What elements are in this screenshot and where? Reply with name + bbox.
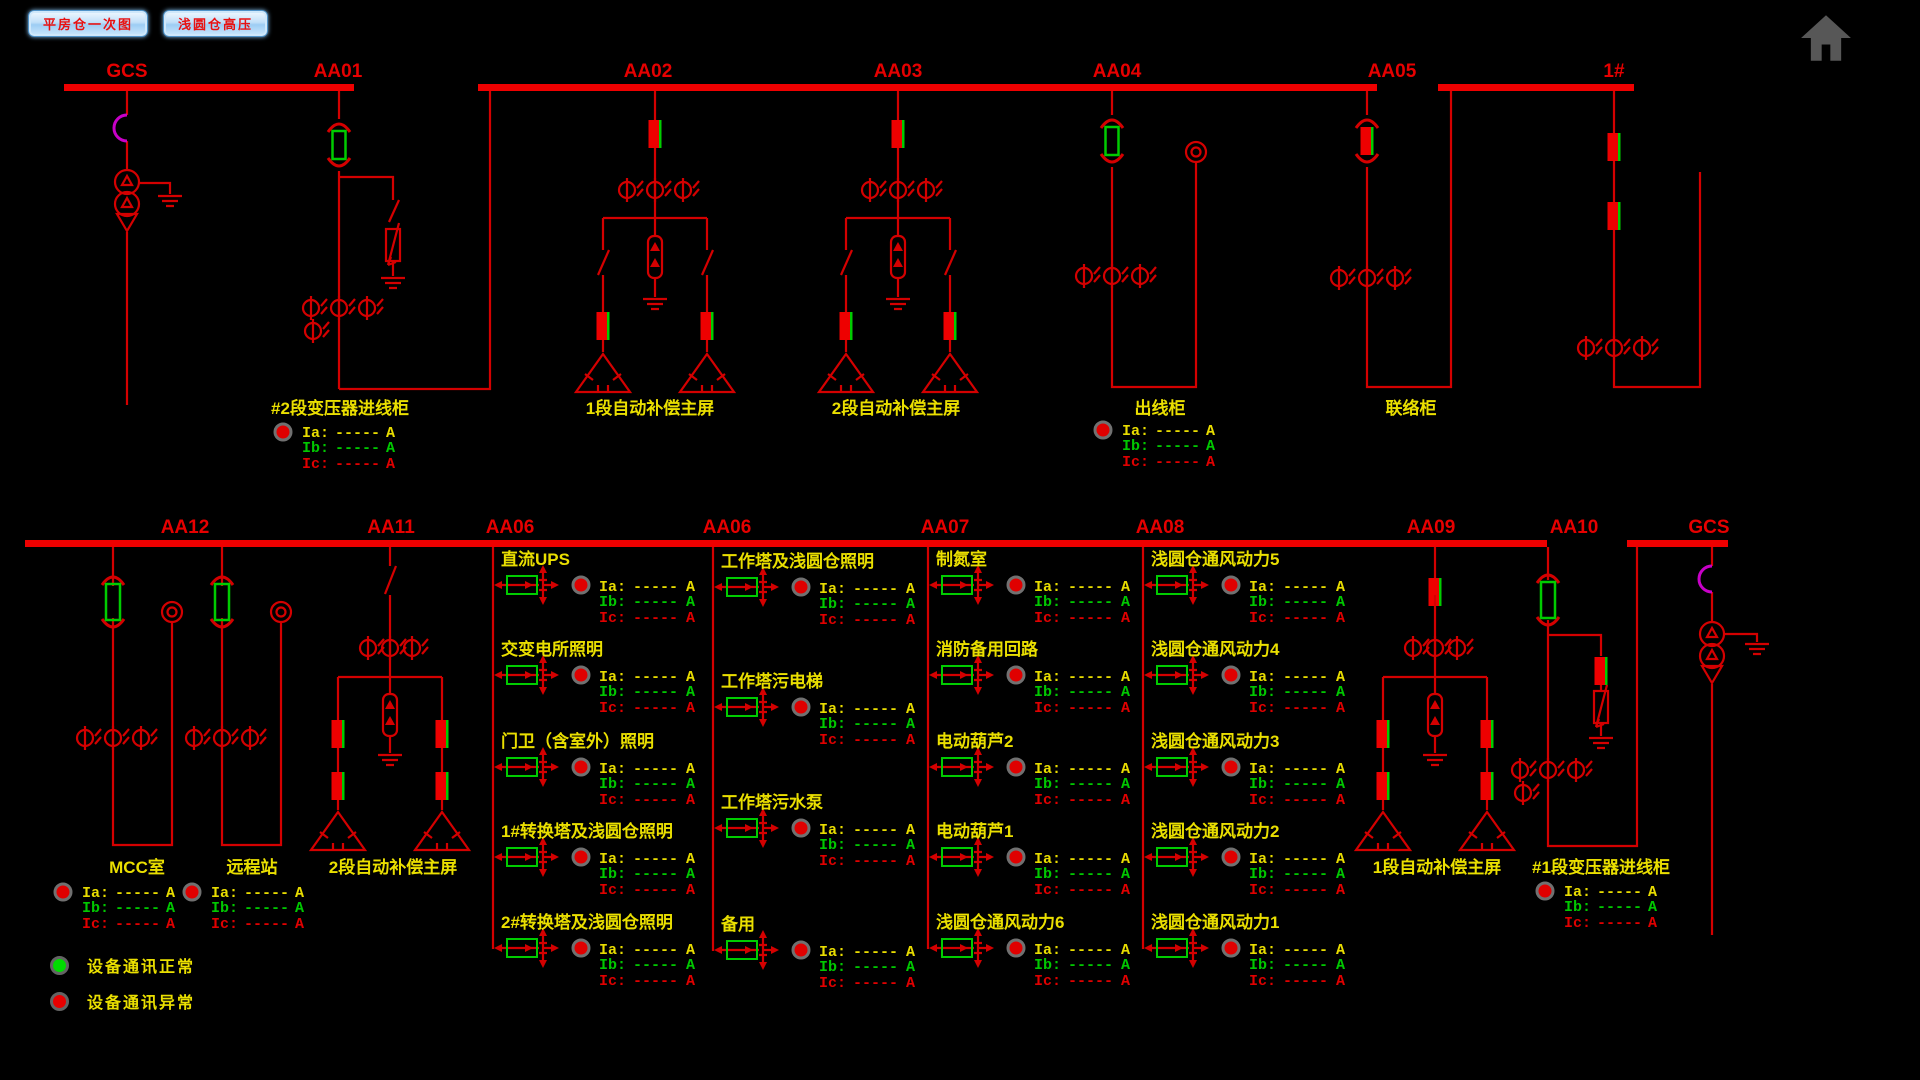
current-readout-unit: A [1121, 684, 1130, 701]
breaker-open-icon [1106, 127, 1119, 155]
drawout-breaker-icon [494, 837, 559, 877]
feeder-label: 浅圆仓通风动力6 [936, 912, 1064, 932]
current-readout-label: Ib: [599, 776, 626, 793]
current-readout-unit: A [686, 957, 695, 974]
current-readout-value: ----- [1283, 882, 1328, 899]
feeder-circuit: 交变电所照明Ia:-----AIb:-----AIc:-----A [494, 639, 695, 717]
bus-label: AA03 [874, 61, 923, 82]
bus-label: AA12 [161, 517, 210, 538]
current-readout-unit: A [906, 612, 915, 629]
feeder-circuit: 直流UPSIa:-----AIb:-----AIc:-----A [494, 549, 695, 627]
feeder-label: 消防备用回路 [936, 639, 1039, 659]
feeder-circuit: 2#转换塔及浅圆仓照明Ia:-----AIb:-----AIc:-----A [494, 912, 695, 990]
current-readout-unit: A [1336, 957, 1345, 974]
cable-head-icon [1186, 142, 1206, 162]
current-readout-label: Ic: [82, 916, 109, 933]
current-readout-unit: A [1336, 866, 1345, 883]
current-readout-value: ----- [1068, 957, 1113, 974]
current-readout-value: ----- [1155, 454, 1200, 471]
current-readout-value: ----- [1283, 594, 1328, 611]
capbank-2-bottom [311, 547, 469, 850]
current-readout-value: ----- [633, 776, 678, 793]
drawout-breaker-icon [929, 655, 994, 695]
current-readout-label: Ic: [599, 973, 626, 990]
current-readout-label: Ib: [1249, 684, 1276, 701]
current-readout-value: ----- [633, 610, 678, 627]
current-readout-value: ----- [1068, 866, 1113, 883]
bus-bars [25, 84, 1728, 547]
voltage-transformer-icon [115, 170, 139, 216]
capbank-2-top [819, 91, 977, 392]
cabinet-label: #2段变压器进线柜 [271, 398, 409, 418]
feeder-1hash [1578, 91, 1700, 387]
feeder-label: 工作塔污水泵 [721, 792, 823, 812]
comm-indicator [1008, 759, 1024, 775]
feeder-label: 电动葫芦1 [936, 821, 1013, 841]
bus-label: GCS [106, 61, 147, 82]
comm-indicator [184, 884, 200, 900]
current-readout-value: ----- [633, 973, 678, 990]
feeder-circuit: 工作塔污水泵Ia:-----AIb:-----AIc:-----A [714, 792, 915, 870]
current-readout-value: ----- [1283, 700, 1328, 717]
current-readout-unit: A [1206, 438, 1215, 455]
current-readout-label: Ib: [1249, 594, 1276, 611]
legend-item-abnormal: 设备通讯异常 [50, 989, 195, 1013]
comm-indicator [573, 667, 589, 683]
drawout-breaker-icon [714, 808, 779, 848]
generated-labels-and-feeders: GCSAA01AA02AA03AA04AA051#AA12AA11AA06AA0… [55, 61, 1730, 992]
cabinet-label: #1段变压器进线柜 [1532, 857, 1670, 877]
bus-label: AA06 [703, 517, 752, 538]
current-readout-unit: A [166, 900, 175, 917]
current-readout-value: ----- [853, 959, 898, 976]
drawout-breaker-icon [929, 747, 994, 787]
current-readout-label: Ib: [599, 594, 626, 611]
current-readout-unit: A [1121, 973, 1130, 990]
feeder-remote-station [186, 547, 291, 845]
current-readout-label: Ic: [1249, 882, 1276, 899]
current-readout-value: ----- [633, 866, 678, 883]
bus-1 [1438, 84, 1634, 91]
cabinet-label: 远程站 [227, 857, 278, 877]
feeder-circuit: 1#转换塔及浅圆仓照明Ia:-----AIb:-----AIc:-----A [494, 821, 695, 899]
feeder-aa01-transformer2-incomer [303, 91, 490, 389]
comm-indicator [1223, 849, 1239, 865]
green-dot-icon [50, 956, 69, 975]
feeder-circuit: 浅圆仓通风动力4Ia:-----AIb:-----AIc:-----A [1144, 639, 1345, 717]
current-readout-label: Ic: [1249, 792, 1276, 809]
current-readout-label: Ic: [1034, 792, 1061, 809]
current-readout-unit: A [686, 973, 695, 990]
feeder-aa04-outgoing [1076, 91, 1206, 387]
current-readout-value: ----- [1068, 882, 1113, 899]
current-readout-value: ----- [244, 900, 289, 917]
current-readout-unit: A [906, 959, 915, 976]
current-readout-unit: A [686, 610, 695, 627]
current-readout-label: Ic: [599, 882, 626, 899]
feeder-circuit: 工作塔及浅圆仓照明Ia:-----AIb:-----AIc:-----A [714, 551, 915, 629]
feeder-circuit: 电动葫芦1Ia:-----AIb:-----AIc:-----A [929, 821, 1130, 899]
drawout-breaker-icon [1144, 837, 1209, 877]
cabinet-readout: Ia:-----AIb:-----AIc:-----A [184, 884, 304, 933]
current-readout-value: ----- [853, 837, 898, 854]
current-readout-value: ----- [853, 612, 898, 629]
ground-icon [1589, 738, 1613, 748]
drawout-breaker-icon [1144, 565, 1209, 605]
current-readout-label: Ic: [302, 456, 329, 473]
current-readout-value: ----- [1068, 776, 1113, 793]
feeder-circuit: 浅圆仓通风动力3Ia:-----AIb:-----AIc:-----A [1144, 731, 1345, 809]
comm-indicator [573, 940, 589, 956]
current-readout-unit: A [1336, 610, 1345, 627]
current-readout-value: ----- [335, 440, 380, 457]
current-readout-unit: A [1336, 594, 1345, 611]
comm-indicator [573, 577, 589, 593]
comm-indicator [1008, 849, 1024, 865]
current-readout-label: Ib: [599, 684, 626, 701]
drawout-breaker-icon [714, 567, 779, 607]
current-readout-value: ----- [1283, 776, 1328, 793]
current-readout-value: ----- [633, 684, 678, 701]
current-readout-label: Ib: [82, 900, 109, 917]
current-readout-value: ----- [1155, 438, 1200, 455]
bus-gcs-bottom [1627, 540, 1728, 547]
current-readout-value: ----- [853, 596, 898, 613]
drawout-breaker-icon [1144, 747, 1209, 787]
bus-aa02-aa05 [478, 84, 1377, 91]
current-readout-unit: A [1121, 594, 1130, 611]
bus-label: GCS [1688, 517, 1729, 538]
bus-label: AA11 [367, 517, 415, 538]
current-readout-unit: A [1121, 957, 1130, 974]
comm-indicator [573, 759, 589, 775]
breaker-closed-icon [1361, 127, 1374, 155]
scada-screen: { "buttons": [ {"label": "平房仓一次图"}, {"la… [0, 0, 1920, 1080]
current-readout-label: Ic: [1034, 973, 1061, 990]
bus-label: AA06 [486, 517, 535, 538]
feeder-label: 浅圆仓通风动力1 [1151, 912, 1279, 932]
feeder-label: 浅圆仓通风动力4 [1151, 639, 1280, 659]
drawout-breaker-icon [714, 930, 779, 970]
current-readout-label: Ic: [599, 610, 626, 627]
feeder-label: 2#转换塔及浅圆仓照明 [501, 912, 673, 932]
bus-label: AA08 [1136, 517, 1185, 538]
drawout-breaker-icon [1144, 655, 1209, 695]
current-readout-value: ----- [1283, 610, 1328, 627]
bus-label: AA01 [314, 61, 363, 82]
comm-indicator [1223, 759, 1239, 775]
drawout-breaker-icon [494, 928, 559, 968]
current-readout-unit: A [1648, 899, 1657, 916]
current-readout-value: ----- [1068, 610, 1113, 627]
current-readout-label: Ic: [1034, 882, 1061, 899]
current-readout-unit: A [686, 700, 695, 717]
current-readout-unit: A [1336, 700, 1345, 717]
cabinet-readout: Ia:-----AIb:-----AIc:-----A [1537, 883, 1657, 932]
comm-indicator [793, 942, 809, 958]
current-readout-label: Ib: [302, 440, 329, 457]
comm-indicator [793, 820, 809, 836]
feeder-circuit: 电动葫芦2Ia:-----AIb:-----AIc:-----A [929, 731, 1130, 809]
current-readout-value: ----- [1597, 899, 1642, 916]
current-readout-label: Ib: [211, 900, 238, 917]
comm-indicator [1537, 883, 1553, 899]
cabinet-readout: Ia:-----AIb:-----AIc:-----A [1095, 422, 1215, 471]
breaker-open-icon [1541, 582, 1555, 618]
current-readout-unit: A [1336, 882, 1345, 899]
current-readout-unit: A [1336, 684, 1345, 701]
bus-label: AA10 [1550, 517, 1599, 538]
current-readout-value: ----- [115, 900, 160, 917]
current-readout-label: Ic: [819, 732, 846, 749]
current-readout-label: Ic: [1249, 973, 1276, 990]
comm-indicator [1223, 577, 1239, 593]
comm-indicator [1008, 667, 1024, 683]
current-readout-value: ----- [1283, 684, 1328, 701]
current-readout-unit: A [295, 900, 304, 917]
cabinet-label: 2段自动补偿主屏 [832, 398, 960, 418]
current-readout-value: ----- [244, 916, 289, 933]
current-readout-label: Ib: [819, 716, 846, 733]
current-readout-label: Ic: [1249, 700, 1276, 717]
current-readout-label: Ic: [599, 792, 626, 809]
current-readout-value: ----- [633, 594, 678, 611]
current-readout-value: ----- [1597, 915, 1642, 932]
drawout-breaker-icon [714, 687, 779, 727]
feeder-label: 1#转换塔及浅圆仓照明 [501, 821, 673, 841]
current-readout-unit: A [1121, 776, 1130, 793]
current-readout-label: Ib: [599, 957, 626, 974]
current-readout-label: Ic: [599, 700, 626, 717]
breaker-closed-icon [1608, 202, 1621, 230]
current-readout-unit: A [1336, 792, 1345, 809]
comm-indicator [1095, 422, 1111, 438]
current-readout-unit: A [1121, 700, 1130, 717]
bus-gcs-top [64, 84, 354, 91]
feeder-circuit: 浅圆仓通风动力5Ia:-----AIb:-----AIc:-----A [1144, 549, 1345, 627]
bus-bottom-main [25, 540, 1547, 547]
comm-status-legend: 设备通讯正常 设备通讯异常 [50, 953, 195, 1025]
current-readout-label: Ic: [1034, 610, 1061, 627]
voltage-transformer-icon [1700, 622, 1724, 668]
current-readout-label: Ib: [1034, 776, 1061, 793]
current-readout-label: Ib: [1249, 957, 1276, 974]
red-dot-icon [50, 992, 69, 1011]
feeder-circuit: 消防备用回路Ia:-----AIb:-----AIc:-----A [929, 639, 1130, 717]
capbank-1-top [576, 91, 734, 392]
breaker-open-icon [333, 131, 346, 159]
current-readout-unit: A [906, 716, 915, 733]
surge-arrester-icon [386, 223, 400, 265]
feeder-aa10-transformer1-incomer [1512, 547, 1637, 846]
legend-label: 设备通讯正常 [87, 953, 195, 977]
bus-label: AA07 [921, 517, 970, 538]
capbank-1-bottom [1356, 547, 1514, 850]
legend-item-normal: 设备通讯正常 [50, 953, 195, 977]
current-readout-label: Ib: [1249, 776, 1276, 793]
current-readout-unit: A [906, 732, 915, 749]
feeder-circuit: 浅圆仓通风动力6Ia:-----AIb:-----AIc:-----A [929, 912, 1130, 990]
current-readout-value: ----- [1283, 973, 1328, 990]
feeder-gcs-top [114, 91, 182, 405]
feeder-label: 工作塔污电梯 [721, 671, 823, 691]
current-readout-unit: A [1121, 792, 1130, 809]
bus-label: AA04 [1093, 61, 1142, 82]
feeder-aa05-tie [1331, 91, 1451, 387]
current-readout-value: ----- [853, 732, 898, 749]
surge-arrester-icon [1594, 685, 1608, 727]
current-readout-label: Ib: [1034, 594, 1061, 611]
current-readout-value: ----- [1068, 684, 1113, 701]
current-readout-label: Ic: [1122, 454, 1149, 471]
cabinet-readout: Ia:-----AIb:-----AIc:-----A [275, 424, 395, 473]
current-readout-label: Ic: [1564, 915, 1591, 932]
current-readout-value: ----- [853, 975, 898, 992]
feeder-mcc-room [77, 547, 182, 845]
feeder-circuit: 浅圆仓通风动力2Ia:-----AIb:-----AIc:-----A [1144, 821, 1345, 899]
current-readout-value: ----- [633, 792, 678, 809]
current-readout-unit: A [906, 975, 915, 992]
current-readout-value: ----- [1068, 792, 1113, 809]
feeder-label: 浅圆仓通风动力2 [1151, 821, 1279, 841]
current-readout-value: ----- [853, 853, 898, 870]
current-readout-unit: A [295, 916, 304, 933]
bus-label: AA09 [1407, 517, 1456, 538]
feeder-label: 浅圆仓通风动力3 [1151, 731, 1279, 751]
current-readout-unit: A [686, 882, 695, 899]
current-readout-value: ----- [1283, 792, 1328, 809]
current-readout-value: ----- [335, 456, 380, 473]
comm-indicator [1008, 577, 1024, 593]
comm-indicator [1223, 667, 1239, 683]
current-readout-label: Ib: [1249, 866, 1276, 883]
current-readout-unit: A [1206, 454, 1215, 471]
feeder-label: 门卫（含室外）照明 [501, 731, 654, 751]
cabinet-label: 联络柜 [1386, 398, 1437, 418]
bus-label: AA02 [624, 61, 673, 82]
current-readout-value: ----- [1068, 973, 1113, 990]
current-readout-unit: A [906, 853, 915, 870]
current-readout-label: Ib: [819, 596, 846, 613]
feeder-gcs-bottom [1699, 547, 1769, 935]
current-readout-unit: A [386, 440, 395, 457]
breaker-closed-icon [1595, 657, 1608, 685]
current-readout-label: Ic: [211, 916, 238, 933]
current-readout-unit: A [1121, 882, 1130, 899]
drawout-breaker-icon [929, 928, 994, 968]
current-readout-unit: A [166, 916, 175, 933]
current-readout-unit: A [686, 776, 695, 793]
current-readout-value: ----- [1283, 866, 1328, 883]
current-readout-unit: A [1336, 973, 1345, 990]
current-readout-label: Ic: [819, 612, 846, 629]
comm-indicator [793, 699, 809, 715]
current-readout-label: Ib: [1034, 957, 1061, 974]
current-readout-label: Ib: [1122, 438, 1149, 455]
feeder-circuit: 备用Ia:-----AIb:-----AIc:-----A [714, 914, 915, 992]
current-readout-label: Ib: [599, 866, 626, 883]
drawout-breaker-icon [494, 565, 559, 605]
feeder-label: 制氮室 [936, 549, 987, 569]
cabinet-readout: Ia:-----AIb:-----AIc:-----A [55, 884, 175, 933]
drawout-breaker-icon [494, 747, 559, 787]
breaker-closed-icon [1608, 133, 1621, 161]
current-readout-unit: A [1648, 915, 1657, 932]
comm-indicator [1223, 940, 1239, 956]
current-readout-label: Ib: [1034, 866, 1061, 883]
current-readout-unit: A [686, 866, 695, 883]
current-readout-unit: A [686, 792, 695, 809]
cabinet-label: 1段自动补偿主屏 [586, 398, 714, 418]
current-readout-label: Ic: [819, 853, 846, 870]
bus-label: AA05 [1368, 61, 1417, 82]
comm-indicator [275, 424, 291, 440]
current-readout-value: ----- [1068, 594, 1113, 611]
drawout-breaker-icon [929, 837, 994, 877]
drawout-breaker-icon [1144, 928, 1209, 968]
current-readout-value: ----- [1068, 700, 1113, 717]
current-readout-label: Ic: [1249, 610, 1276, 627]
cabinet-label: 2段自动补偿主屏 [329, 857, 457, 877]
feeder-label: 电动葫芦2 [936, 731, 1013, 751]
current-readout-unit: A [686, 684, 695, 701]
legend-label: 设备通讯异常 [87, 989, 195, 1013]
current-readout-value: ----- [633, 957, 678, 974]
current-readout-value: ----- [1283, 957, 1328, 974]
current-readout-label: Ib: [819, 837, 846, 854]
current-readout-unit: A [386, 456, 395, 473]
drawout-breaker-icon [494, 655, 559, 695]
cabinet-label: 1段自动补偿主屏 [1373, 857, 1501, 877]
ground-icon [1745, 644, 1769, 654]
current-readout-value: ----- [633, 700, 678, 717]
current-readout-unit: A [1121, 610, 1130, 627]
bus-label: 1# [1603, 61, 1625, 82]
current-readout-unit: A [906, 596, 915, 613]
current-readout-value: ----- [633, 882, 678, 899]
feeder-label: 交变电所照明 [501, 639, 603, 659]
current-readout-unit: A [906, 837, 915, 854]
cabinet-label: MCC室 [109, 857, 165, 877]
ground-icon [158, 196, 182, 206]
ground-icon [381, 278, 405, 288]
current-readout-label: Ib: [1564, 899, 1591, 916]
current-readout-value: ----- [115, 916, 160, 933]
current-readout-label: Ic: [819, 975, 846, 992]
feeder-label: 工作塔及浅圆仓照明 [721, 551, 874, 571]
comm-indicator [573, 849, 589, 865]
feeder-label: 直流UPS [501, 549, 570, 569]
current-readout-label: Ib: [1034, 684, 1061, 701]
feeder-circuit: 制氮室Ia:-----AIb:-----AIc:-----A [929, 549, 1130, 627]
cabinet-label: 出线柜 [1135, 398, 1186, 418]
drawout-breaker-icon [929, 565, 994, 605]
feeder-circuit: 门卫（含室外）照明Ia:-----AIb:-----AIc:-----A [494, 731, 695, 809]
comm-indicator [1008, 940, 1024, 956]
feeder-circuit: 工作塔污电梯Ia:-----AIb:-----AIc:-----A [714, 671, 915, 749]
current-readout-unit: A [1336, 776, 1345, 793]
feeder-label: 浅圆仓通风动力5 [1151, 549, 1279, 569]
current-readout-value: ----- [853, 716, 898, 733]
current-readout-label: Ib: [819, 959, 846, 976]
single-line-diagram: GCSAA01AA02AA03AA04AA051#AA12AA11AA06AA0… [0, 0, 1920, 1080]
current-readout-unit: A [686, 594, 695, 611]
comm-indicator [55, 884, 71, 900]
current-readout-unit: A [1121, 866, 1130, 883]
comm-indicator [793, 579, 809, 595]
feeder-circuit: 浅圆仓通风动力1Ia:-----AIb:-----AIc:-----A [1144, 912, 1345, 990]
feeder-label: 备用 [720, 914, 755, 934]
